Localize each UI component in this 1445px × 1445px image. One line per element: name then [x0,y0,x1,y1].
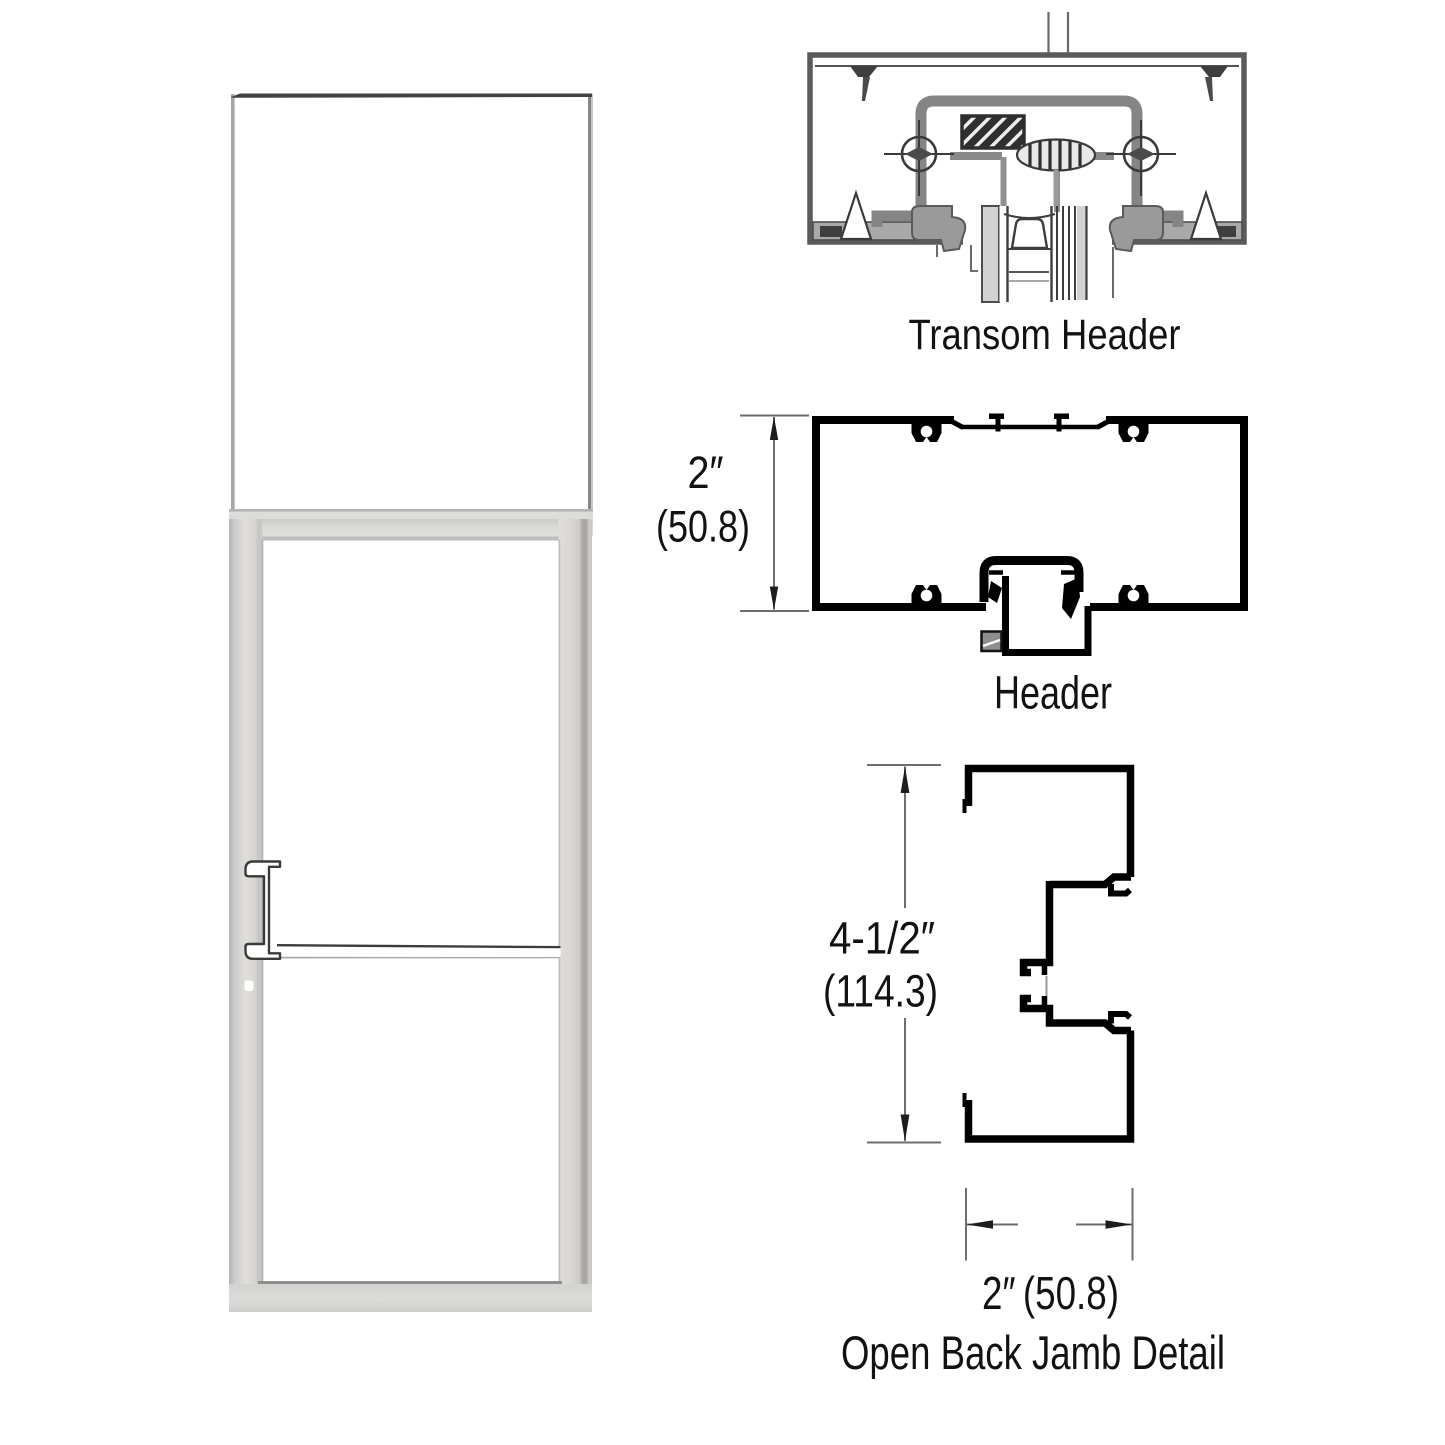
svg-text:4-1/2″: 4-1/2″ [829,913,935,964]
svg-text:Transom Header: Transom Header [909,311,1181,359]
svg-text:(50.8): (50.8) [656,503,750,552]
svg-text:Header: Header [994,667,1112,719]
svg-text:2″ (50.8): 2″ (50.8) [982,1267,1119,1319]
svg-text:2″: 2″ [688,447,724,498]
svg-text:(114.3): (114.3) [823,966,938,1017]
svg-text:Open Back Jamb Detail: Open Back Jamb Detail [841,1326,1225,1379]
